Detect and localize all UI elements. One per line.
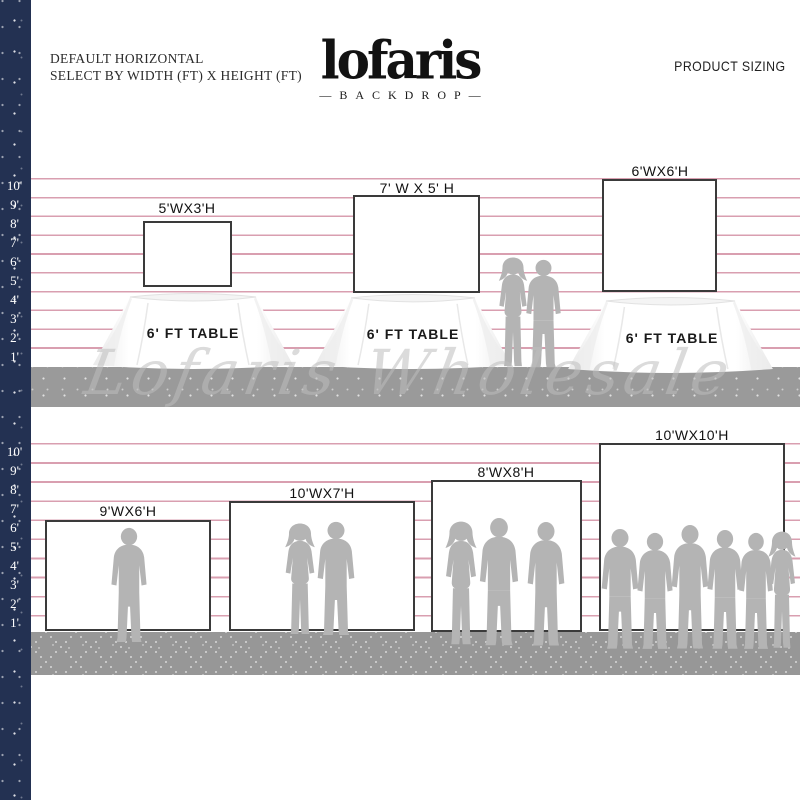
man-silhouette [521,259,566,373]
ruler-tick-label: 4' [0,558,29,574]
backdrop-size-label: 6'WX6'H [631,163,688,179]
ruler-tick-label: 5' [0,273,29,289]
backdrop-7x5 [353,195,480,293]
ruler-tick-label: 4' [0,292,29,308]
backdrop-size-label: 7' W X 5' H [380,180,455,196]
backdrop-size-label: 8'WX8'H [477,464,534,480]
ruler-tick-label: 2' [0,596,29,612]
ruler-tick-label: 1' [0,349,29,365]
product-sizing-page: Lofaris Wholesale DEFAULT HORIZONTAL SEL… [0,0,800,800]
product-sizing-title: PRODUCT SIZING [675,58,786,74]
man-silhouette [106,527,152,648]
ruler-tick-label: 10' [0,178,29,194]
ruler-tick-label: 3' [0,311,29,327]
man-silhouette [474,517,524,652]
ruler-tick-label: 9' [0,197,29,213]
ruler-tick-label: 7' [0,235,29,251]
woman-silhouette [762,530,800,655]
backdrop-5x3 [143,221,232,287]
backdrop-size-label: 10'WX7'H [289,485,354,501]
ruler-tick-label: 5' [0,539,29,555]
table-label: 6' FT TABLE [367,326,460,342]
ruler-tick-label: 8' [0,482,29,498]
table-label: 6' FT TABLE [626,330,719,346]
backdrop-size-label: 5'WX3'H [158,200,215,216]
backdrop-size-label: 9'WX6'H [99,503,156,519]
backdrop-size-label: 10'WX10'H [655,427,729,443]
ruler-tick-label: 7' [0,501,29,517]
ruler-tick-label: 6' [0,520,29,536]
man-silhouette [522,521,570,652]
table-label: 6' FT TABLE [147,325,240,341]
ruler-tick-label: 1' [0,615,29,631]
man-silhouette [312,521,360,641]
ruler-tick-label: 2' [0,330,29,346]
backdrop-6x6 [602,179,717,292]
ruler-tick-label: 9' [0,463,29,479]
ruler-tick-label: 3' [0,577,29,593]
ruler-tick-label: 8' [0,216,29,232]
ruler-tick-label: 6' [0,254,29,270]
ruler-tick-label: 10' [0,444,29,460]
left-ruler-strip: 10' 9' 8' 7' 6' 5' 4' 3' 2' 1' 10' 9' 8'… [0,0,31,800]
